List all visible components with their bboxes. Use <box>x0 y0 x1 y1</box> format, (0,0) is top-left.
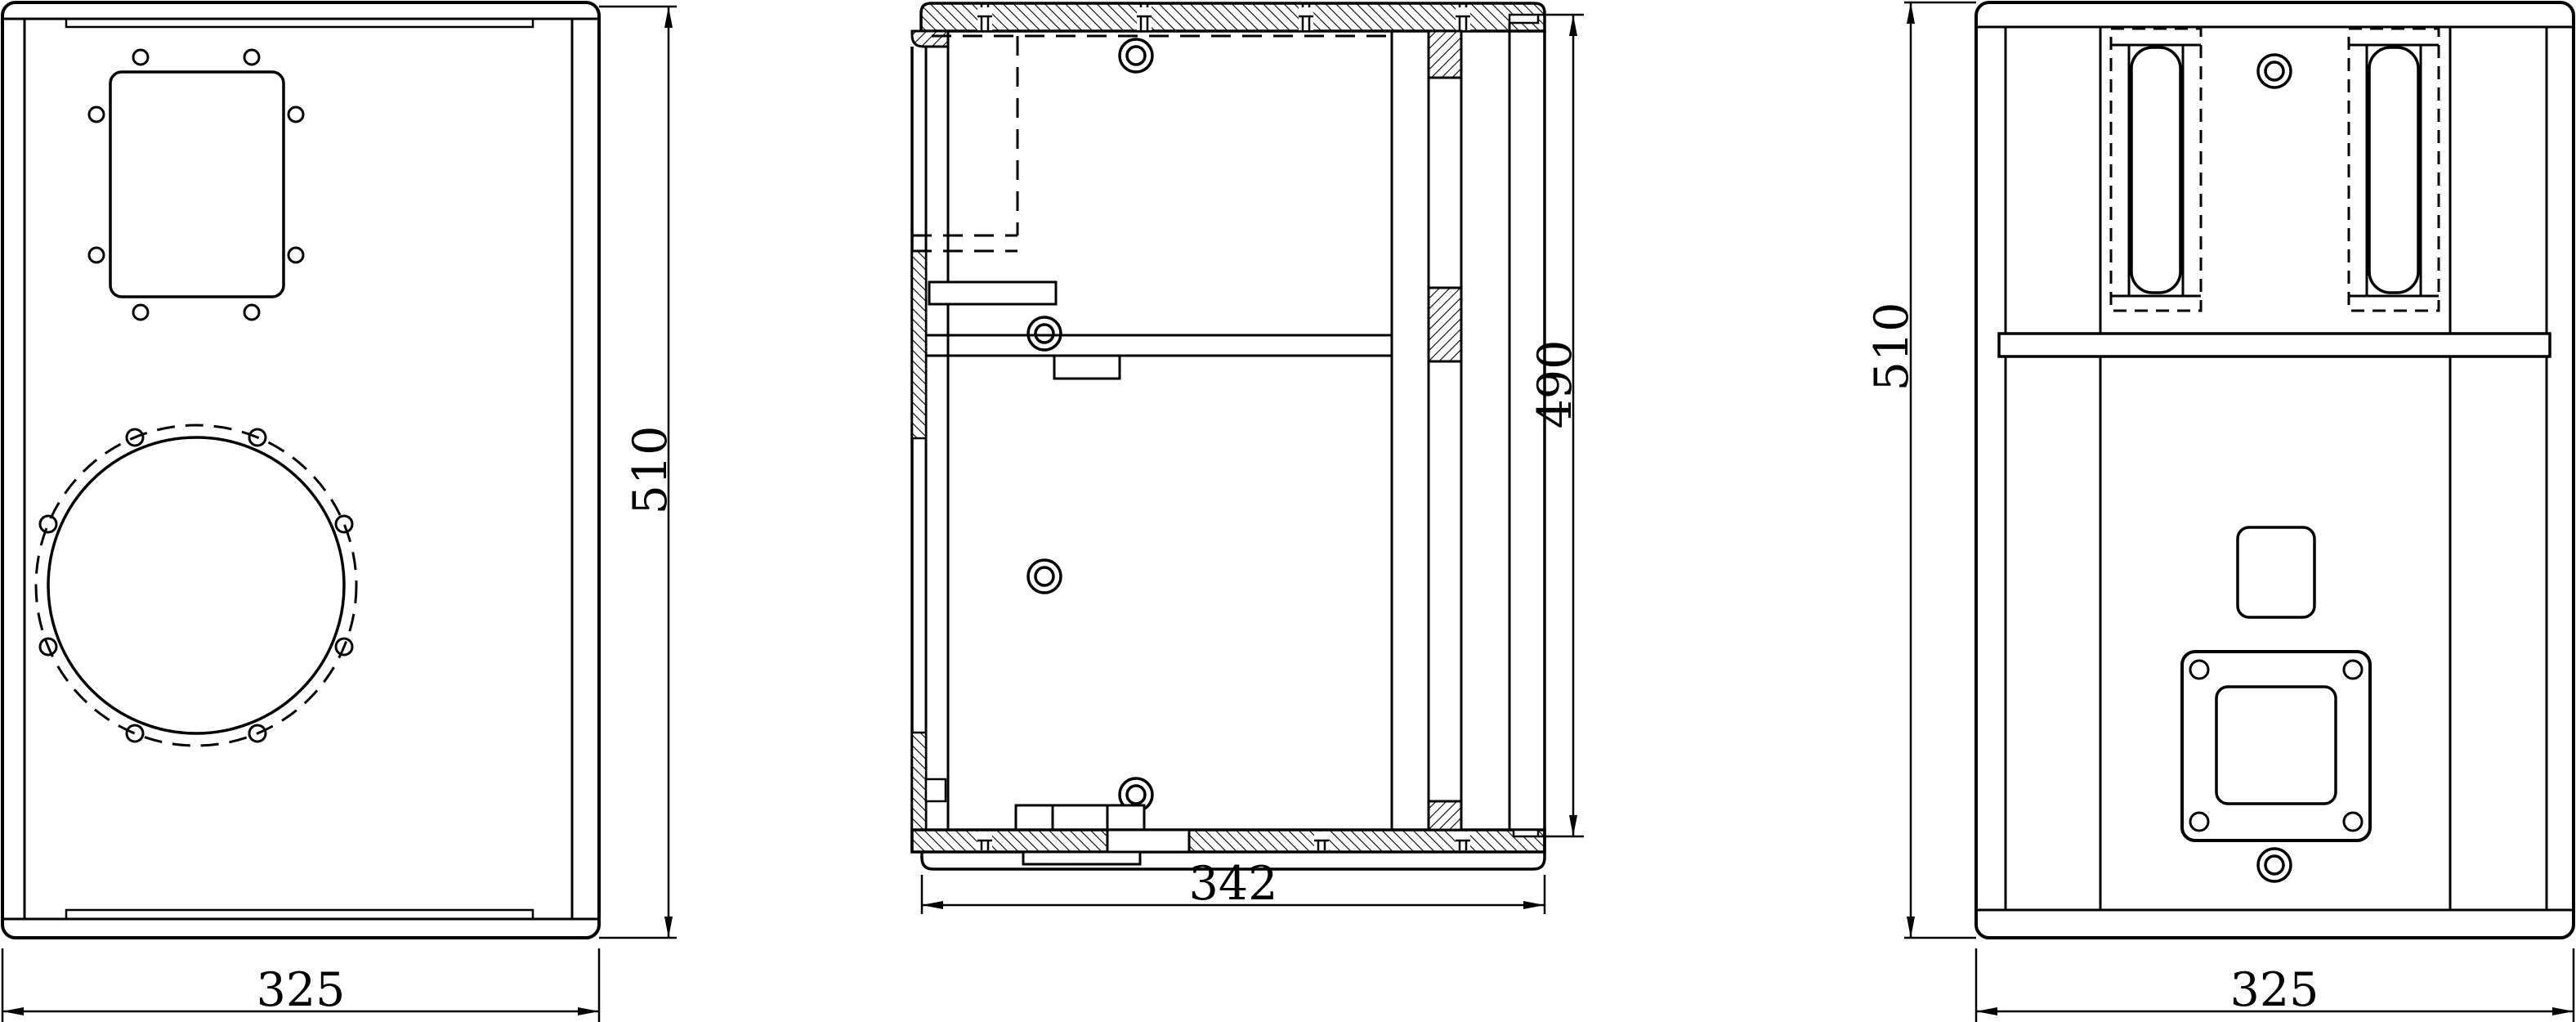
depth-label: 342 <box>1189 857 1278 911</box>
front-height-label: 510 <box>624 426 678 515</box>
baffle-section-hatch-low <box>912 733 926 830</box>
back-cleat-hatch-mid <box>1429 288 1461 361</box>
rear-height-label: 510 <box>1865 303 1919 392</box>
side-section-view: 490 342 <box>912 3 1584 914</box>
front-cabinet-outline <box>2 2 599 938</box>
pole-mount-notch <box>1107 830 1189 852</box>
back-cleat-hatch-low <box>1429 801 1461 830</box>
section-screws <box>1028 39 1152 811</box>
front-view: 510 325 <box>2 2 678 1022</box>
front-width-label: 325 <box>257 963 346 1017</box>
bottom-recess-plate <box>1023 852 1140 864</box>
rear-view: 510 325 <box>1865 2 2574 1022</box>
front-width-dimension: 325 <box>2 948 599 1022</box>
rear-width-label: 325 <box>2230 963 2319 1017</box>
internal-brace-lower <box>1054 356 1120 379</box>
back-height-label: 490 <box>1528 340 1582 429</box>
depth-dimension: 342 <box>922 857 1545 914</box>
rear-height-dimension: 510 <box>1865 2 1976 938</box>
back-cleat-hatch-top <box>1429 31 1461 78</box>
connector-plate <box>2182 652 2370 840</box>
rear-width-dimension: 325 <box>1976 948 2574 1022</box>
pole-mount-cleat <box>1016 805 1144 830</box>
baffle-corner-block <box>912 31 948 47</box>
internal-brace-upper <box>929 282 1056 304</box>
front-height-dimension: 510 <box>599 7 678 938</box>
hidden-horn-outline <box>912 36 1389 251</box>
technical-drawing-canvas: 510 325 <box>0 0 2576 1022</box>
back-height-dimension: 490 <box>1528 15 1584 836</box>
bottom-panel-section <box>912 830 1545 852</box>
baffle-section-hatch-mid <box>912 251 926 438</box>
top-panel-section <box>921 3 1545 31</box>
rear-cross-brace <box>1999 334 2550 356</box>
